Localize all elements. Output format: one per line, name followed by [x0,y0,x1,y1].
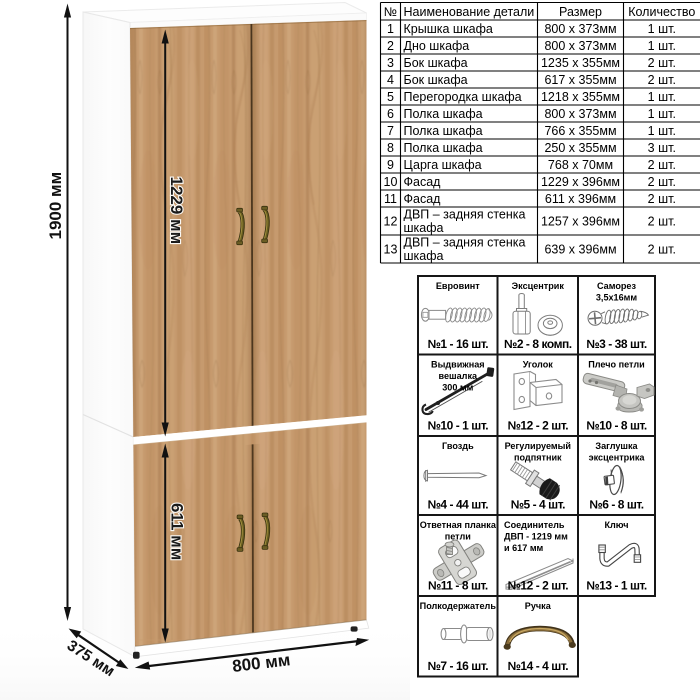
svg-text:№5 - 4 шт.: №5 - 4 шт. [511,498,565,512]
svg-text:611 х 396мм: 611 х 396мм [545,192,616,206]
svg-text:7: 7 [387,124,394,138]
svg-text:Евровинт: Евровинт [436,281,480,291]
svg-text:1: 1 [387,22,394,36]
svg-text:ДВП - 1219 мм: ДВП - 1219 мм [504,532,568,542]
svg-text:5: 5 [387,90,394,104]
svg-text:петли: петли [445,532,471,542]
svg-text:1 шт.: 1 шт. [648,124,676,138]
svg-text:3: 3 [387,56,394,70]
svg-text:№6 - 8 шт.: №6 - 8 шт. [589,498,643,512]
svg-text:№10 - 8 шт.: №10 - 8 шт. [586,419,647,433]
svg-text:Ключ: Ключ [604,520,628,530]
svg-text:2 шт.: 2 шт. [648,158,676,172]
svg-text:№12 - 2 шт.: №12 - 2 шт. [507,579,568,593]
svg-text:Ответная планка: Ответная планка [420,520,497,530]
svg-text:4: 4 [387,73,394,87]
svg-text:2 шт.: 2 шт. [648,192,676,206]
svg-text:2 шт.: 2 шт. [648,56,676,70]
svg-text:Количество: Количество [628,5,695,19]
svg-text:768 х 70мм: 768 х 70мм [548,158,613,172]
svg-text:2: 2 [387,39,394,53]
svg-text:2 шт.: 2 шт. [648,243,676,257]
svg-text:2 шт.: 2 шт. [648,215,676,229]
svg-text:Заглушка: Заглушка [595,441,638,451]
svg-text:9: 9 [387,158,394,172]
svg-text:1 шт.: 1 шт. [648,22,676,36]
svg-text:Ручка: Ручка [525,601,552,611]
svg-text:Размер: Размер [559,5,602,19]
svg-text:1 шт.: 1 шт. [648,107,676,121]
svg-text:13: 13 [384,243,398,257]
svg-text:Полка шкафа: Полка шкафа [404,141,483,155]
svg-text:3 шт.: 3 шт. [648,141,676,155]
svg-text:800 х 373мм: 800 х 373мм [544,107,616,121]
svg-text:Гвоздь: Гвоздь [442,441,474,451]
svg-text:№11 - 8 шт.: №11 - 8 шт. [428,579,488,593]
svg-text:и 617 мм: и 617 мм [504,543,544,553]
svg-text:639 х 396мм: 639 х 396мм [544,243,616,257]
svg-text:250 х 355мм: 250 х 355мм [544,141,616,155]
svg-text:3,5х16мм: 3,5х16мм [596,293,638,303]
svg-text:1229 х 396мм: 1229 х 396мм [541,175,620,189]
svg-text:766 х 355мм: 766 х 355мм [544,124,616,138]
svg-text:№14 - 4 шт.: №14 - 4 шт. [507,659,568,673]
svg-text:8: 8 [387,141,394,155]
svg-text:1900 мм: 1900 мм [46,172,65,240]
svg-text:Бок шкафа: Бок шкафа [404,73,468,87]
svg-text:шкафа: шкафа [404,221,444,235]
svg-text:Полкодержатель: Полкодержатель [420,601,497,611]
svg-text:Плечо петли: Плечо петли [588,360,645,370]
svg-text:Регулируемый: Регулируемый [505,441,571,451]
svg-text:эксцентрика: эксцентрика [589,453,646,463]
svg-text:617 х 355мм: 617 х 355мм [544,73,616,87]
svg-text:№10 - 1 шт.: №10 - 1 шт. [427,419,488,433]
svg-text:№2 - 8 комп.: №2 - 8 комп. [504,337,572,351]
svg-text:№4 - 44 шт.: №4 - 44 шт. [427,498,488,512]
svg-text:611 мм: 611 мм [168,503,187,560]
svg-text:№7 - 16 шт.: №7 - 16 шт. [427,659,488,673]
svg-text:Наименование детали: Наименование детали [404,5,535,19]
svg-text:№13 - 1 шт.: №13 - 1 шт. [586,579,647,593]
svg-text:Уголок: Уголок [523,360,554,370]
svg-text:Эксцентрик: Эксцентрик [512,281,565,291]
svg-text:Дно шкафа: Дно шкафа [404,39,470,53]
svg-text:6: 6 [387,107,394,121]
svg-text:1235 х 355мм: 1235 х 355мм [541,56,620,70]
svg-text:№: № [384,5,397,19]
svg-text:800 х 373мм: 800 х 373мм [544,39,616,53]
svg-text:12: 12 [384,215,398,229]
svg-text:ДВП – задняя стенка: ДВП – задняя стенка [404,236,526,250]
svg-text:Полка шкафа: Полка шкафа [404,107,483,121]
svg-text:Фасад: Фасад [404,192,442,206]
svg-text:подпятник: подпятник [514,453,562,463]
svg-text:№1 - 16 шт.: №1 - 16 шт. [427,337,488,351]
svg-text:11: 11 [384,192,397,206]
svg-text:2 шт.: 2 шт. [648,73,676,87]
svg-text:Бок шкафа: Бок шкафа [404,56,468,70]
svg-text:1218 х 355мм: 1218 х 355мм [541,90,620,104]
svg-text:Перегородка шкафа: Перегородка шкафа [404,90,522,104]
svg-text:Царга шкафа: Царга шкафа [404,158,482,172]
svg-text:10: 10 [384,175,398,189]
svg-text:1 шт.: 1 шт. [648,90,676,104]
svg-text:300 мм: 300 мм [442,382,473,392]
svg-text:1 шт.: 1 шт. [648,39,676,53]
svg-text:вешалка: вешалка [439,371,478,381]
svg-text:800 х 373мм: 800 х 373мм [544,22,616,36]
svg-text:1229 мм: 1229 мм [167,177,186,245]
svg-text:Саморез: Саморез [597,281,637,291]
svg-text:2 шт.: 2 шт. [648,175,676,189]
svg-text:1257 х 396мм: 1257 х 396мм [541,215,620,229]
svg-text:Выдвижная: Выдвижная [431,360,485,370]
svg-text:шкафа: шкафа [404,249,444,263]
svg-text:№3 - 38 шт.: №3 - 38 шт. [586,337,647,351]
svg-text:Соединитель: Соединитель [504,520,565,530]
svg-text:Крышка шкафа: Крышка шкафа [404,22,493,36]
svg-text:№12 - 2 шт.: №12 - 2 шт. [507,419,568,433]
svg-text:ДВП – задняя стенка: ДВП – задняя стенка [404,208,526,222]
svg-text:Фасад: Фасад [404,175,442,189]
svg-text:Полка шкафа: Полка шкафа [404,124,483,138]
